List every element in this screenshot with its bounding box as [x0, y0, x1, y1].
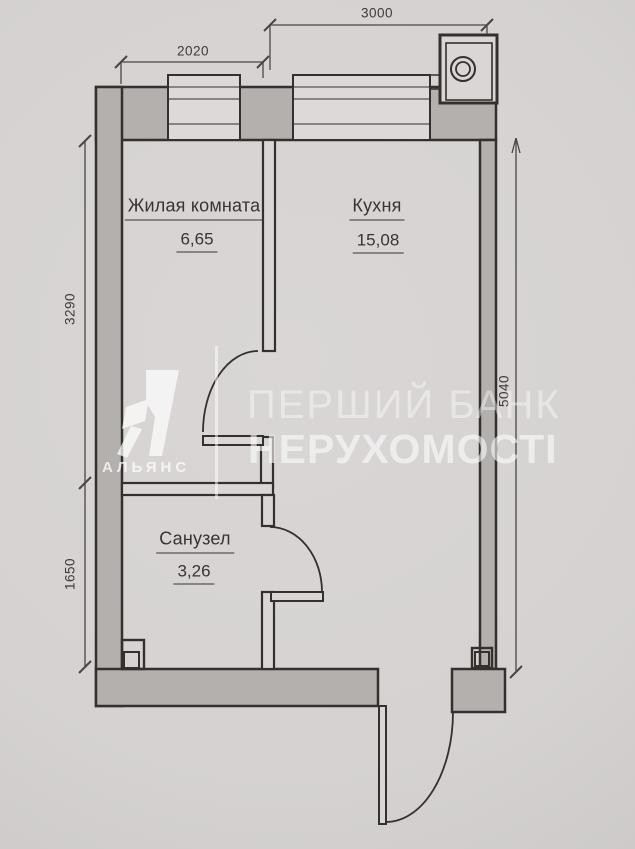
room-area-living: 6,65 — [176, 230, 217, 253]
floorplan-photo: 2020 3000 3290 1650 5040 Жилая комната 6… — [0, 0, 635, 849]
dim-3000: 3000 — [361, 6, 393, 21]
dim-3290: 3290 — [63, 293, 78, 325]
partition-living-kitchen — [263, 140, 275, 351]
partition-bathroom-jamb — [262, 495, 274, 526]
vent-box-outer — [440, 35, 497, 103]
room-label-living: Жилая комната — [125, 196, 264, 221]
windows — [168, 75, 430, 140]
bathroom-door-arc — [270, 527, 322, 592]
window-kitchen — [293, 75, 430, 140]
doors — [203, 351, 453, 824]
window-living-room — [168, 75, 240, 140]
bathroom-door-leaf — [271, 592, 323, 601]
wall-right — [480, 140, 496, 669]
wall-bottom — [96, 669, 378, 706]
room-label-kitchen: Кухня — [349, 196, 404, 221]
partition-bathroom-lower — [262, 592, 274, 669]
living-room-door-leaf — [203, 436, 263, 445]
duct-bathroom — [122, 640, 144, 669]
outer-walls — [96, 87, 505, 712]
room-label-bathroom: Санузел — [156, 529, 234, 554]
dim-2020: 2020 — [177, 44, 209, 59]
dim-1650: 1650 — [63, 558, 78, 590]
room-area-bathroom: 3,26 — [173, 562, 214, 585]
living-room-door-arc — [203, 351, 258, 432]
service-ducts — [122, 640, 492, 669]
duct-bathroom-inner — [124, 652, 139, 668]
entrance-door-leaf — [379, 706, 386, 824]
floorplan-drawing — [0, 0, 635, 849]
entrance-door-arc — [386, 712, 453, 822]
room-area-kitchen: 15,08 — [353, 231, 404, 254]
wall-left — [96, 87, 122, 706]
partition-bathroom-top — [122, 483, 273, 495]
dim-5040: 5040 — [497, 375, 512, 407]
vent-shaft — [430, 35, 497, 103]
wall-bottom-right-block — [452, 669, 505, 712]
